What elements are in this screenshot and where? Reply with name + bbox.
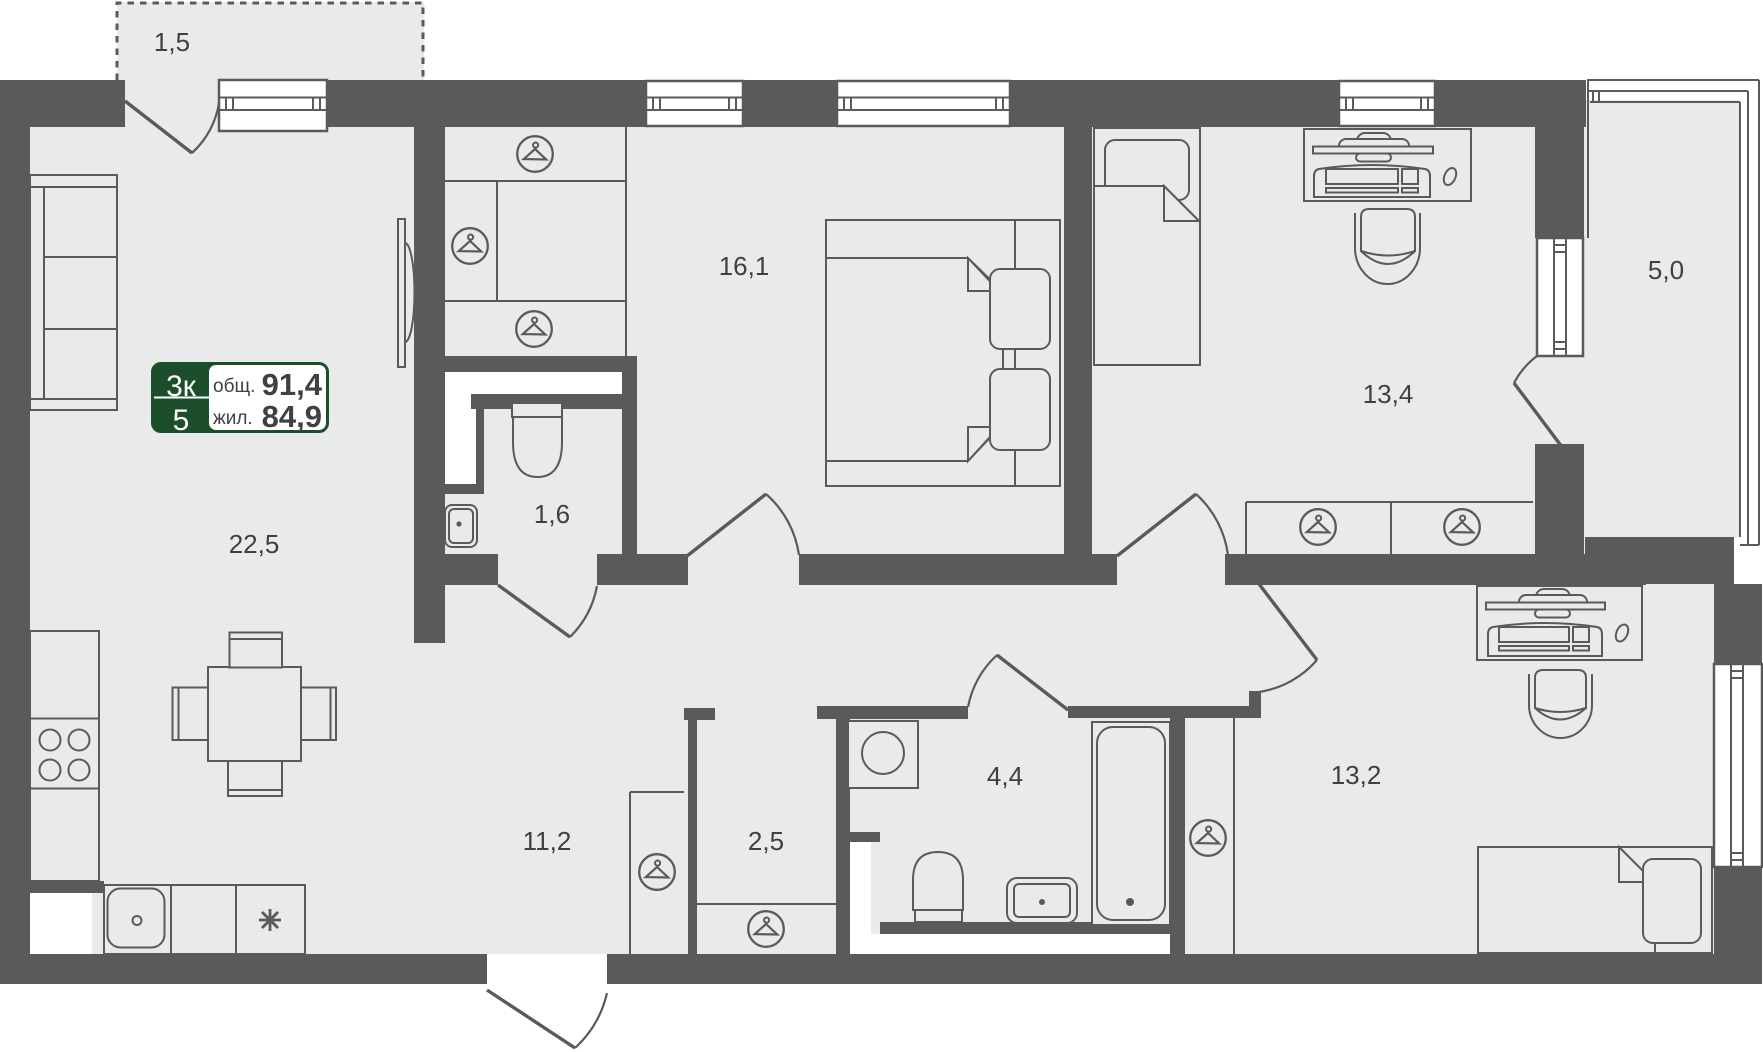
svg-text:1,5: 1,5: [154, 27, 190, 57]
svg-text:5,0: 5,0: [1648, 255, 1684, 285]
svg-text:91,4: 91,4: [262, 367, 323, 402]
svg-text:общ.: общ.: [213, 376, 255, 397]
svg-text:13,2: 13,2: [1331, 760, 1382, 790]
svg-text:1,6: 1,6: [534, 499, 570, 529]
svg-text:жил.: жил.: [213, 408, 253, 429]
svg-text:22,5: 22,5: [229, 529, 280, 559]
svg-text:4,4: 4,4: [987, 761, 1023, 791]
svg-text:84,9: 84,9: [262, 399, 322, 434]
svg-text:2,5: 2,5: [748, 826, 784, 856]
svg-text:13,4: 13,4: [1363, 379, 1414, 409]
svg-text:5: 5: [173, 404, 190, 437]
svg-text:3к: 3к: [166, 370, 197, 403]
svg-text:11,2: 11,2: [523, 826, 572, 856]
svg-text:16,1: 16,1: [719, 251, 770, 281]
